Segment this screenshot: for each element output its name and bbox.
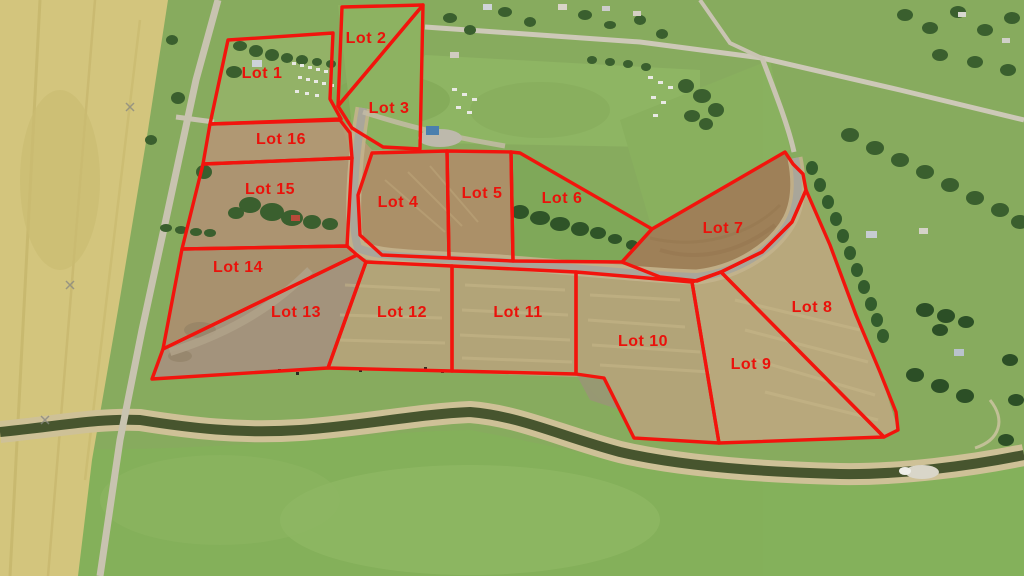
lot-label-lot-15: Lot 15	[245, 181, 295, 198]
lot-boundary-lot-15	[182, 158, 352, 249]
lot-boundary-lot-9	[692, 272, 884, 443]
lot-label-lot-4: Lot 4	[378, 194, 419, 211]
lot-label-lot-10: Lot 10	[618, 333, 668, 350]
lot-label-lot-8: Lot 8	[792, 299, 833, 316]
lot-label-lot-12: Lot 12	[377, 304, 427, 321]
lot-annotation-lot-7: Lot 7	[622, 152, 806, 281]
lot-label-lot-7: Lot 7	[703, 220, 744, 237]
lot-annotation-lot-5: Lot 5	[447, 151, 513, 261]
lot-annotation-lot-16: Lot 16	[203, 120, 352, 164]
lot-boundary-lot-6	[511, 152, 652, 262]
lot-annotation-lot-8: Lot 8	[721, 190, 898, 437]
lot-label-lot-14: Lot 14	[213, 259, 263, 276]
lot-label-lot-13: Lot 13	[271, 304, 321, 321]
lot-boundary-lot-3	[338, 5, 423, 149]
lot-annotation-lot-14: Lot 14	[163, 246, 357, 349]
aerial-lot-map: Lot 1Lot 2Lot 3Lot 4Lot 5Lot 6Lot 7Lot 8…	[0, 0, 1024, 576]
lot-boundary-lot-5	[447, 151, 513, 261]
lot-label-lot-6: Lot 6	[542, 190, 583, 207]
lot-annotation-lot-11: Lot 11	[452, 266, 576, 374]
lot-boundary-overlay: Lot 1Lot 2Lot 3Lot 4Lot 5Lot 6Lot 7Lot 8…	[0, 0, 1024, 576]
lot-annotation-lot-3: Lot 3	[338, 5, 423, 149]
lot-label-lot-9: Lot 9	[731, 356, 772, 373]
lot-label-lot-11: Lot 11	[493, 304, 542, 321]
lot-annotation-lot-4: Lot 4	[358, 151, 449, 258]
lot-boundary-lot-10	[576, 272, 719, 443]
lot-label-lot-2: Lot 2	[346, 30, 387, 47]
lot-label-lot-5: Lot 5	[462, 185, 503, 202]
lot-label-lot-3: Lot 3	[369, 100, 410, 117]
lot-annotation-lot-9: Lot 9	[692, 272, 884, 443]
lot-boundary-lot-7	[622, 152, 806, 281]
lot-label-lot-1: Lot 1	[242, 65, 283, 82]
lot-annotation-lot-15: Lot 15	[182, 158, 352, 249]
lot-label-lot-16: Lot 16	[256, 131, 306, 148]
lot-annotation-lot-10: Lot 10	[576, 272, 719, 443]
lot-annotation-lot-6: Lot 6	[511, 152, 652, 262]
lot-annotation-lot-1: Lot 1	[210, 33, 341, 124]
